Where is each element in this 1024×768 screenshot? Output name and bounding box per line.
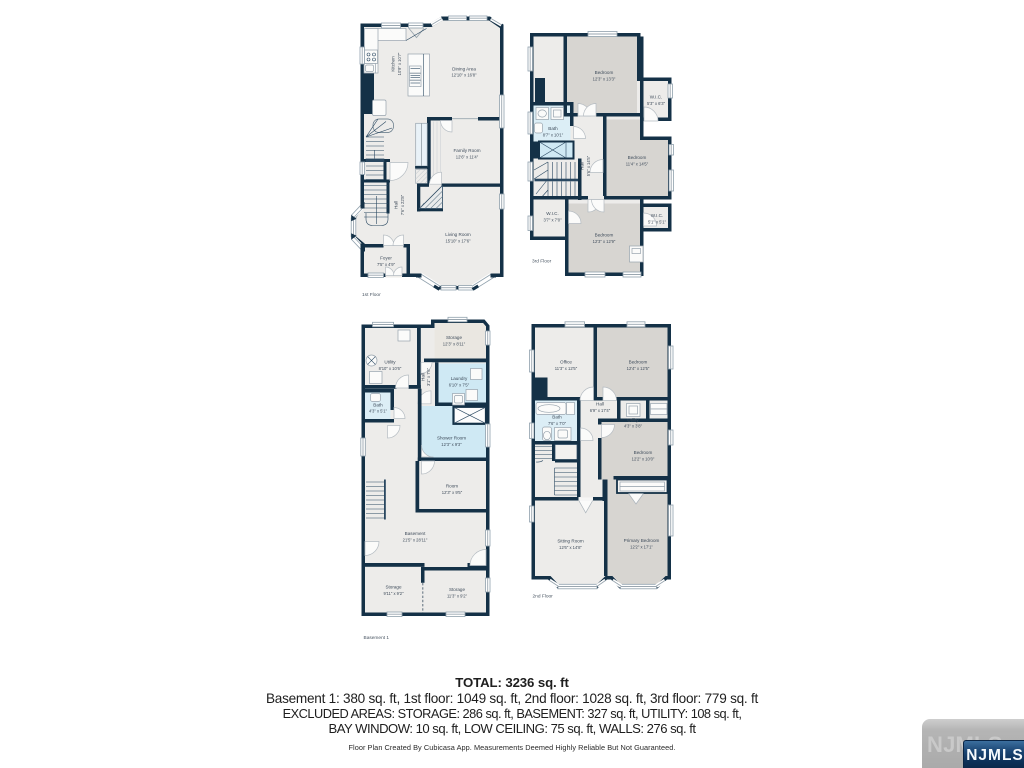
svg-text:10'9" x 10'7": 10'9" x 10'7"	[397, 52, 402, 75]
svg-text:9'11" x 9'2": 9'11" x 9'2"	[383, 591, 404, 596]
svg-text:Laundry: Laundry	[451, 376, 468, 381]
svg-text:Family Room: Family Room	[453, 148, 480, 153]
svg-text:Bedroom: Bedroom	[628, 155, 647, 160]
svg-text:12'6" x 14'8": 12'6" x 14'8"	[559, 545, 582, 550]
svg-text:Bedroom: Bedroom	[629, 360, 648, 365]
svg-text:Storage: Storage	[446, 335, 463, 340]
svg-text:Bath: Bath	[548, 126, 558, 131]
svg-text:3rd Floor: 3rd Floor	[532, 259, 552, 265]
svg-text:12'3" x 13'3": 12'3" x 13'3"	[593, 77, 616, 82]
svg-text:Room: Room	[446, 484, 458, 489]
svg-text:3'1" x 7'6": 3'1" x 7'6"	[426, 367, 431, 386]
svg-text:Bath: Bath	[373, 403, 383, 408]
svg-text:5'1" x 5'1": 5'1" x 5'1"	[648, 220, 667, 225]
svg-text:Dining Area: Dining Area	[452, 67, 476, 72]
svg-text:Utility: Utility	[384, 360, 396, 365]
svg-text:4'3" x 3'8": 4'3" x 3'8"	[624, 424, 643, 429]
svg-text:3'7" x 7'0": 3'7" x 7'0"	[543, 218, 562, 223]
svg-text:Shower Room: Shower Room	[437, 436, 466, 441]
svg-text:Storage: Storage	[449, 587, 466, 592]
svg-text:Kitchen: Kitchen	[391, 56, 396, 72]
svg-text:6'9" x 17'4": 6'9" x 17'4"	[590, 408, 611, 413]
svg-text:W.I.C.: W.I.C.	[650, 95, 663, 100]
svg-text:5'3" x 6'3": 5'3" x 6'3"	[647, 101, 666, 106]
svg-text:W.I.C.: W.I.C.	[651, 213, 664, 218]
svg-text:12'10" x 16'8": 12'10" x 16'8"	[451, 72, 477, 77]
svg-text:11'3" x 12'5": 11'3" x 12'5"	[555, 366, 578, 371]
svg-text:Foyer: Foyer	[380, 256, 392, 261]
svg-text:Storage: Storage	[385, 585, 402, 590]
svg-text:Office: Office	[560, 360, 572, 365]
svg-text:W.I.C.: W.I.C.	[546, 211, 559, 216]
svg-text:12'3" x 8'11": 12'3" x 8'11"	[443, 342, 466, 347]
svg-text:2nd Floor: 2nd Floor	[533, 594, 554, 600]
svg-text:4'3" x 5'1": 4'3" x 5'1"	[369, 409, 388, 414]
svg-text:15'10" x 17'6": 15'10" x 17'6"	[445, 238, 471, 243]
svg-text:12'3" x 9'3": 12'3" x 9'3"	[441, 442, 462, 447]
svg-text:7'6" x 22'8": 7'6" x 22'8"	[400, 194, 405, 215]
svg-text:Basement 1: Basement 1	[364, 635, 390, 641]
svg-text:5'6" x 14'5": 5'6" x 14'5"	[586, 155, 591, 176]
svg-text:Utility: Utility	[627, 418, 639, 423]
svg-text:8'7" x 10'1": 8'7" x 10'1"	[543, 133, 564, 138]
svg-text:12'3" x 12'9": 12'3" x 12'9"	[593, 239, 616, 244]
svg-text:7'6" x 7'0": 7'6" x 7'0"	[548, 421, 567, 426]
svg-text:1st Floor: 1st Floor	[362, 292, 381, 298]
svg-text:Bedroom: Bedroom	[634, 450, 653, 455]
svg-text:7'5" x 4'9": 7'5" x 4'9"	[377, 262, 396, 267]
svg-text:12'4" x 12'5": 12'4" x 12'5"	[627, 366, 650, 371]
svg-text:Living Room: Living Room	[445, 232, 471, 237]
svg-text:Bedroom: Bedroom	[595, 70, 614, 75]
svg-text:Basement: Basement	[405, 531, 426, 536]
svg-text:Hall: Hall	[580, 162, 585, 170]
svg-text:8'10" x 10'6": 8'10" x 10'6"	[379, 366, 402, 371]
svg-text:Hall: Hall	[394, 201, 399, 209]
svg-text:Primary Bedroom: Primary Bedroom	[624, 538, 660, 543]
svg-text:21'5" x 28'11": 21'5" x 28'11"	[403, 538, 428, 543]
svg-text:12'3" x 9'5": 12'3" x 9'5"	[442, 490, 463, 495]
svg-text:Bath: Bath	[552, 415, 562, 420]
svg-text:Hall: Hall	[596, 402, 604, 407]
svg-text:11'4" x 14'5": 11'4" x 14'5"	[626, 162, 649, 167]
svg-text:Hall: Hall	[421, 373, 426, 381]
svg-text:12'2" x 17'1": 12'2" x 17'1"	[630, 545, 653, 550]
svg-text:11'3" x 9'2": 11'3" x 9'2"	[447, 594, 468, 599]
svg-text:Sitting Room: Sitting Room	[557, 539, 583, 544]
svg-text:12'2" x 10'0": 12'2" x 10'0"	[632, 457, 655, 462]
svg-text:Bedroom: Bedroom	[595, 233, 614, 238]
svg-text:6'10" x 7'5": 6'10" x 7'5"	[449, 383, 470, 388]
svg-text:12'6" x 11'4": 12'6" x 11'4"	[456, 155, 479, 160]
